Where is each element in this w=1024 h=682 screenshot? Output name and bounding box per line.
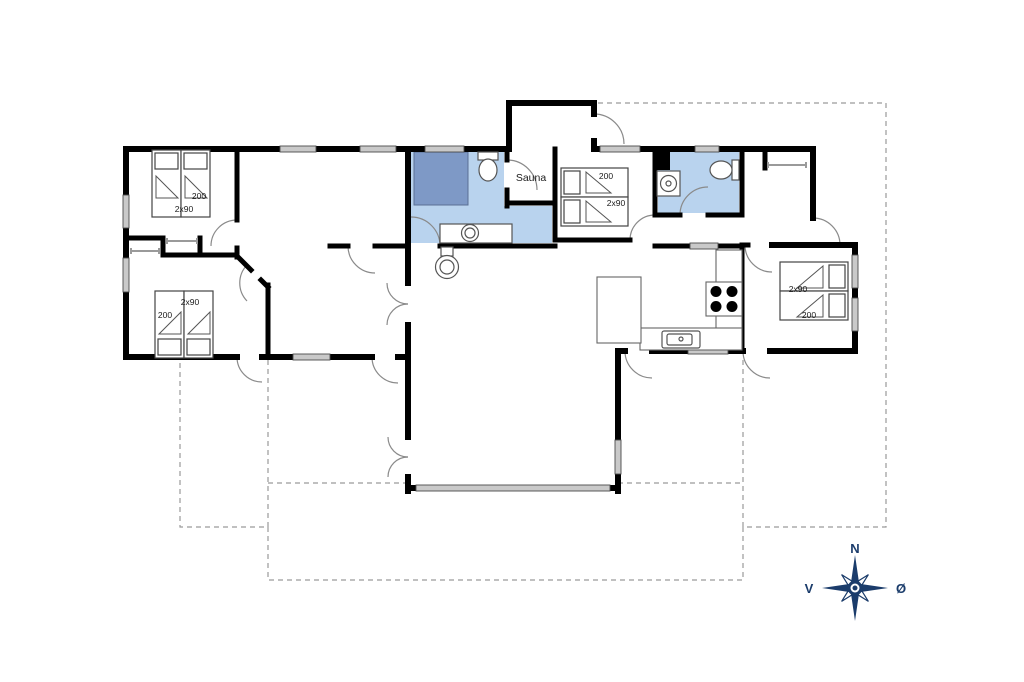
compass-label-east: Ø — [896, 581, 906, 596]
stove-icon — [706, 282, 742, 316]
dining-table — [597, 277, 641, 343]
toilet-icon — [478, 152, 498, 181]
bedroom-middle: 200 2x90 — [561, 168, 628, 226]
bed-length-label: 200 — [192, 191, 206, 201]
wardrobe-icon — [768, 162, 806, 168]
kitchen — [597, 250, 742, 350]
bed-width-label: 2x90 — [181, 297, 200, 307]
kitchen-sink-icon — [662, 331, 700, 348]
compass-rose: N V Ø — [805, 541, 906, 621]
bathroom-sink-icon — [440, 224, 512, 243]
floor-plan-canvas: Sauna — [0, 0, 1024, 682]
bed-width-label: 2x90 — [789, 284, 808, 294]
toilet-icon — [710, 160, 739, 180]
bedroom-bottom-left: 2x90 200 — [155, 291, 213, 358]
heater-unit — [657, 152, 670, 170]
bed-length-label: 200 — [599, 171, 613, 181]
sauna-room: Sauna — [516, 172, 547, 184]
bed-length-label: 200 — [158, 310, 172, 320]
wood-stove-icon — [436, 247, 459, 279]
wardrobe-icon — [131, 248, 159, 254]
shower-area — [414, 152, 468, 205]
floor-plan-drawing: Sauna — [0, 0, 1024, 682]
door-arcs — [211, 114, 840, 477]
sauna-label: Sauna — [516, 172, 547, 184]
bed-width-label: 2x90 — [175, 204, 194, 214]
bed-length-label: 200 — [802, 310, 816, 320]
wardrobe-icon — [167, 238, 197, 244]
bedroom-top-left: 200 2x90 — [152, 150, 210, 217]
bedroom-right: 2x90 200 — [780, 262, 848, 320]
washing-machine-icon — [657, 171, 680, 196]
compass-label-north: N — [850, 541, 859, 556]
bed-width-label: 2x90 — [607, 198, 626, 208]
compass-label-west: V — [805, 581, 814, 596]
